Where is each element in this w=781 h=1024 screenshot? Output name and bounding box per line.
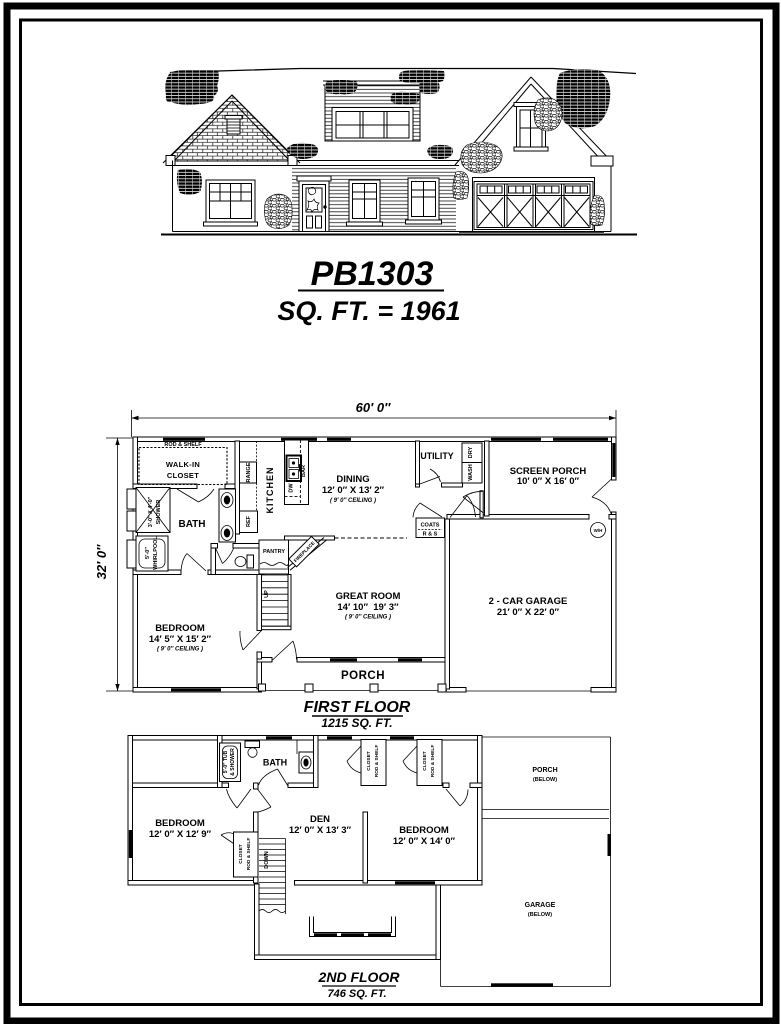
svg-text:14′ 10″ 19′ 3″: 14′ 10″ 19′ 3″: [337, 602, 399, 613]
svg-text:21′ 0″ X 22′ 0″: 21′ 0″ X 22′ 0″: [497, 607, 560, 618]
svg-text:DRY: DRY: [468, 446, 474, 458]
svg-text:BAR: BAR: [301, 465, 307, 477]
svg-text:12′ 0″ X 13′ 3″: 12′ 0″ X 13′ 3″: [289, 825, 352, 836]
svg-text:CLOSET: CLOSET: [238, 844, 244, 864]
svg-text:CLOSET: CLOSET: [422, 751, 428, 771]
svg-text:PB1303: PB1303: [311, 255, 434, 293]
svg-text:UTILITY: UTILITY: [420, 451, 453, 461]
svg-text:BEDROOM: BEDROOM: [399, 825, 449, 836]
svg-text:PORCH: PORCH: [532, 767, 557, 774]
svg-text:ROD & SHELF: ROD & SHELF: [246, 838, 252, 871]
svg-text:W/H: W/H: [594, 528, 603, 533]
svg-text:12′ 0″ X 12′ 9″: 12′ 0″ X 12′ 9″: [149, 829, 212, 840]
svg-text:SQ. FT. = 1961: SQ. FT. = 1961: [277, 296, 460, 326]
svg-text:10′ 0″ X 16′ 0″: 10′ 0″ X 16′ 0″: [517, 476, 580, 487]
svg-text:R & S: R & S: [423, 532, 438, 538]
svg-text:60′ 0″: 60′ 0″: [356, 400, 391, 415]
svg-text:DINING: DINING: [336, 474, 369, 485]
svg-text:32′ 0″: 32′ 0″: [94, 544, 109, 579]
svg-text:SHOWER: SHOWER: [156, 500, 162, 525]
svg-text:WHIRLPOOL: WHIRLPOOL: [153, 536, 159, 570]
svg-text:GREAT ROOM: GREAT ROOM: [336, 591, 401, 602]
svg-text:1215 SQ. FT.: 1215 SQ. FT.: [321, 716, 392, 730]
svg-text:BEDROOM: BEDROOM: [155, 623, 205, 634]
svg-text:COATS: COATS: [421, 523, 440, 529]
svg-text:5′-0″: 5′-0″: [145, 547, 151, 559]
svg-text:3′-0″ X 4′-0″: 3′-0″ X 4′-0″: [148, 496, 154, 527]
svg-text:& SHOWER: & SHOWER: [230, 748, 236, 776]
svg-text:WASH: WASH: [468, 464, 474, 481]
svg-text:UP: UP: [264, 590, 270, 598]
svg-text:(BELOW): (BELOW): [533, 777, 557, 783]
svg-text:FIRST FLOOR: FIRST FLOOR: [304, 699, 411, 716]
svg-text:WALK-IN: WALK-IN: [166, 460, 200, 469]
svg-text:ROD & SHELF: ROD & SHELF: [374, 745, 380, 778]
svg-text:DEN: DEN: [310, 814, 330, 825]
svg-text:REF: REF: [246, 515, 252, 527]
svg-text:5′-0″ TUB: 5′-0″ TUB: [223, 750, 229, 773]
svg-text:( 9′ 0″ CEILING ): ( 9′ 0″ CEILING ): [330, 498, 376, 504]
svg-text:ROD & SHELF: ROD & SHELF: [164, 442, 202, 448]
svg-text:14′ 5″ X 15′ 2″: 14′ 5″ X 15′ 2″: [149, 634, 212, 645]
svg-text:12′ 0″ X 14′ 0″: 12′ 0″ X 14′ 0″: [393, 836, 456, 847]
svg-text:CLOSET: CLOSET: [366, 751, 372, 771]
svg-text:DW: DW: [289, 483, 295, 493]
svg-text:2 - CAR GARAGE: 2 - CAR GARAGE: [489, 596, 568, 607]
svg-text:( 9′ 0″ CEILING ): ( 9′ 0″ CEILING ): [345, 615, 391, 621]
svg-text:BATH: BATH: [263, 758, 287, 768]
svg-text:746 SQ. FT.: 746 SQ. FT.: [327, 988, 386, 1000]
svg-text:( 9′ 0″ CEILING ): ( 9′ 0″ CEILING ): [157, 647, 203, 653]
svg-text:ROD & SHELF: ROD & SHELF: [430, 745, 436, 778]
svg-text:BEDROOM: BEDROOM: [155, 818, 205, 829]
svg-text:PANTRY: PANTRY: [263, 549, 285, 555]
svg-text:(BELOW): (BELOW): [528, 912, 552, 918]
svg-text:PORCH: PORCH: [341, 670, 385, 682]
svg-text:GARAGE: GARAGE: [525, 902, 556, 909]
svg-text:12′ 0″ X 13′ 2″: 12′ 0″ X 13′ 2″: [322, 485, 385, 496]
svg-text:DOWN: DOWN: [264, 851, 270, 868]
svg-text:KITCHEN: KITCHEN: [265, 467, 275, 514]
svg-text:BATH: BATH: [178, 519, 205, 530]
svg-text:CLOSET: CLOSET: [167, 471, 199, 480]
svg-text:2ND FLOOR: 2ND FLOOR: [318, 969, 401, 985]
svg-text:RANGE: RANGE: [246, 462, 252, 482]
